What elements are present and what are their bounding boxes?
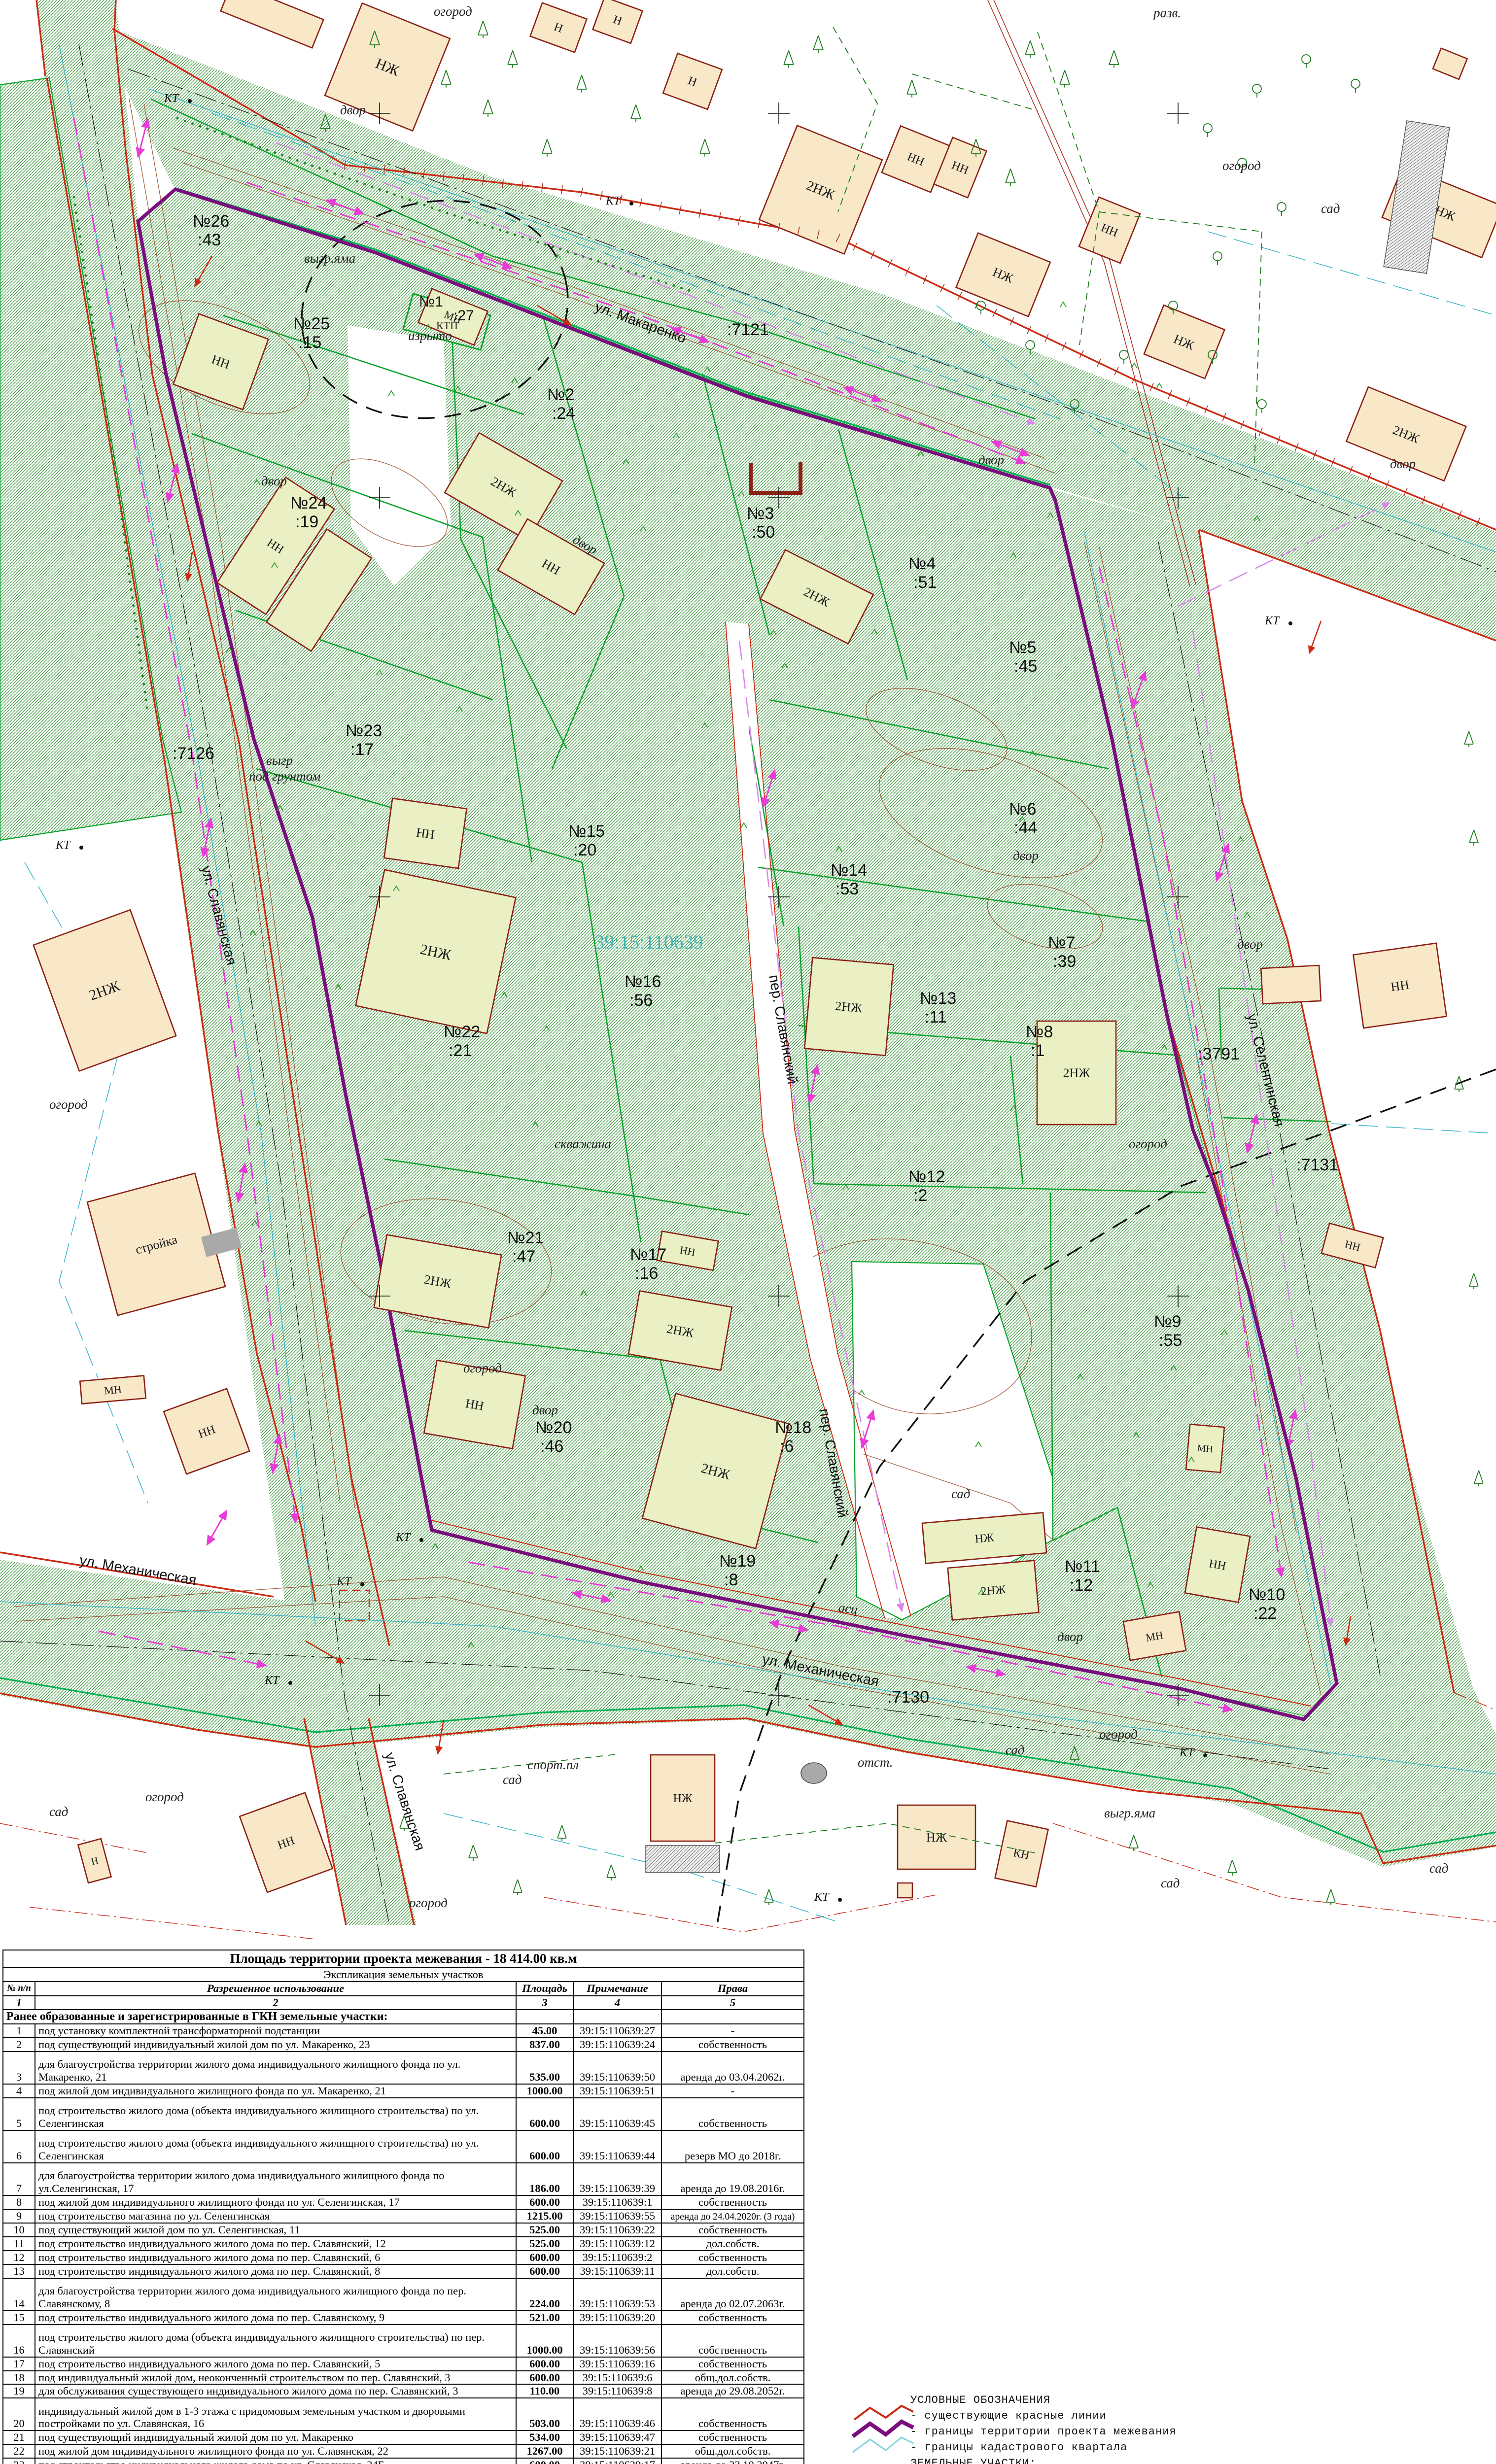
svg-text:разв.: разв. — [1152, 5, 1181, 20]
svg-text:КТ: КТ — [1179, 1746, 1195, 1759]
svg-text:№6: №6 — [1009, 800, 1036, 819]
svg-text:выгр.яма: выгр.яма — [304, 251, 355, 266]
svg-text::39: :39 — [1053, 952, 1076, 971]
svg-text:№4: №4 — [908, 554, 936, 573]
svg-text::17: :17 — [350, 740, 374, 759]
svg-text:НЖ: НЖ — [974, 1531, 995, 1545]
svg-text:КТ: КТ — [1264, 615, 1280, 627]
svg-text:огород: огород — [409, 1895, 448, 1910]
svg-text:огород: огород — [1222, 158, 1261, 173]
svg-text:№20: №20 — [535, 1418, 572, 1437]
svg-text::8: :8 — [724, 1571, 738, 1589]
svg-text:№15: №15 — [568, 822, 605, 841]
svg-text:сад: сад — [951, 1486, 970, 1501]
svg-text:двор: двор — [1390, 456, 1416, 471]
svg-text:НН: НН — [1390, 977, 1410, 994]
svg-text::55: :55 — [1159, 1331, 1182, 1350]
svg-text:№19: №19 — [719, 1552, 756, 1571]
svg-text::7130: :7130 — [887, 1688, 929, 1707]
svg-text::16: :16 — [635, 1264, 658, 1283]
svg-text::7121: :7121 — [727, 320, 769, 339]
svg-text:2НЖ: 2НЖ — [980, 1583, 1007, 1598]
svg-text:сад: сад — [503, 1772, 522, 1787]
svg-text:МН: МН — [104, 1383, 122, 1397]
svg-text::20: :20 — [573, 841, 596, 859]
svg-text:2НЖ: 2НЖ — [835, 999, 863, 1016]
svg-text:двор: двор — [1013, 848, 1039, 863]
svg-text::19: :19 — [295, 513, 318, 531]
svg-text:№5: №5 — [1009, 638, 1036, 657]
svg-text::43: :43 — [198, 231, 221, 249]
svg-text:огород: огород — [463, 1361, 502, 1375]
svg-text:огород: огород — [49, 1097, 88, 1112]
svg-text:№18: №18 — [775, 1418, 811, 1437]
svg-text:КТ: КТ — [55, 839, 71, 852]
svg-text::53: :53 — [835, 880, 859, 898]
svg-text:№11: №11 — [1065, 1557, 1100, 1576]
svg-text:КТ: КТ — [395, 1531, 411, 1544]
svg-text:асц: асц — [837, 1600, 859, 1617]
svg-text:выгр: выгр — [266, 753, 293, 768]
svg-text:№17: №17 — [630, 1245, 666, 1264]
svg-text:спорт.пл: спорт.пл — [527, 1757, 579, 1772]
svg-text:№21: №21 — [507, 1229, 544, 1247]
svg-text::47: :47 — [512, 1247, 535, 1266]
svg-text::24: :24 — [552, 404, 575, 423]
svg-text::44: :44 — [1014, 819, 1037, 837]
svg-text:КТ: КТ — [336, 1575, 352, 1588]
svg-text:№8: №8 — [1026, 1023, 1053, 1041]
svg-text::12: :12 — [1070, 1576, 1093, 1595]
svg-text:№9: №9 — [1154, 1312, 1181, 1331]
svg-text:№16: №16 — [625, 972, 661, 991]
svg-text::7126: :7126 — [173, 744, 214, 763]
svg-text:сад: сад — [1161, 1876, 1180, 1890]
svg-text:сад: сад — [49, 1804, 68, 1819]
svg-text:огород: огород — [145, 1789, 184, 1804]
svg-text:отст.: отст. — [858, 1755, 893, 1770]
svg-text:огород: огород — [1129, 1136, 1167, 1151]
svg-text::51: :51 — [913, 573, 937, 592]
svg-text:2НЖ: 2НЖ — [1063, 1066, 1090, 1080]
svg-text:№1: №1 — [419, 294, 443, 310]
svg-text:№26: №26 — [193, 212, 229, 231]
svg-text:НН: НН — [415, 825, 435, 842]
svg-text::1: :1 — [1031, 1041, 1044, 1060]
svg-text::22: :22 — [1253, 1604, 1277, 1623]
svg-text::6: :6 — [780, 1437, 794, 1456]
svg-text:№10: №10 — [1249, 1585, 1285, 1604]
svg-text:№22: №22 — [444, 1023, 480, 1041]
svg-text:КТ: КТ — [814, 1891, 830, 1904]
svg-text::46: :46 — [540, 1437, 563, 1456]
svg-text:39:15:110639: 39:15:110639 — [594, 931, 703, 953]
svg-text:№23: №23 — [346, 721, 382, 740]
svg-text:двор: двор — [340, 103, 366, 117]
svg-text::50: :50 — [752, 523, 775, 542]
svg-text:НЖ: НЖ — [673, 1792, 693, 1805]
svg-text:двор: двор — [532, 1403, 558, 1417]
svg-text:двор: двор — [1237, 937, 1263, 952]
svg-text::2: :2 — [913, 1186, 927, 1205]
svg-text::56: :56 — [629, 991, 653, 1010]
svg-text:№12: №12 — [908, 1167, 945, 1186]
svg-text:сад: сад — [1321, 201, 1340, 216]
svg-text::21: :21 — [449, 1041, 472, 1060]
svg-text:двор: двор — [1057, 1629, 1083, 1644]
svg-text:№3: №3 — [747, 504, 774, 523]
svg-text::15: :15 — [298, 333, 321, 352]
svg-text:выгр.яма: выгр.яма — [1104, 1806, 1155, 1820]
svg-text:двор: двор — [978, 452, 1004, 467]
svg-text::45: :45 — [1014, 657, 1037, 676]
svg-text:КТП: КТП — [436, 319, 458, 332]
svg-text:под грунтом: под грунтом — [249, 769, 320, 784]
svg-text:двор: двор — [261, 474, 287, 488]
svg-text:МН: МН — [1197, 1443, 1214, 1455]
svg-text:КТ: КТ — [164, 92, 179, 105]
svg-text:№13: №13 — [920, 989, 956, 1008]
svg-text:скважина: скважина — [555, 1136, 611, 1151]
svg-text:№25: №25 — [293, 314, 330, 333]
svg-text:огород: огород — [1099, 1727, 1138, 1742]
svg-text:КТ: КТ — [264, 1674, 280, 1687]
svg-text:КТ: КТ — [605, 195, 621, 207]
svg-text:№7: №7 — [1048, 933, 1075, 952]
svg-text::7131: :7131 — [1296, 1156, 1338, 1174]
svg-text::3791: :3791 — [1198, 1045, 1240, 1063]
svg-text:№24: №24 — [290, 494, 327, 513]
svg-text:сад: сад — [1429, 1861, 1448, 1876]
svg-text:огород: огород — [434, 4, 472, 19]
svg-text:сад: сад — [1006, 1743, 1024, 1757]
svg-text::11: :11 — [925, 1008, 947, 1027]
svg-text:№2: №2 — [547, 385, 574, 404]
svg-text:НЖ: НЖ — [926, 1830, 947, 1845]
svg-text:№14: №14 — [831, 861, 867, 880]
